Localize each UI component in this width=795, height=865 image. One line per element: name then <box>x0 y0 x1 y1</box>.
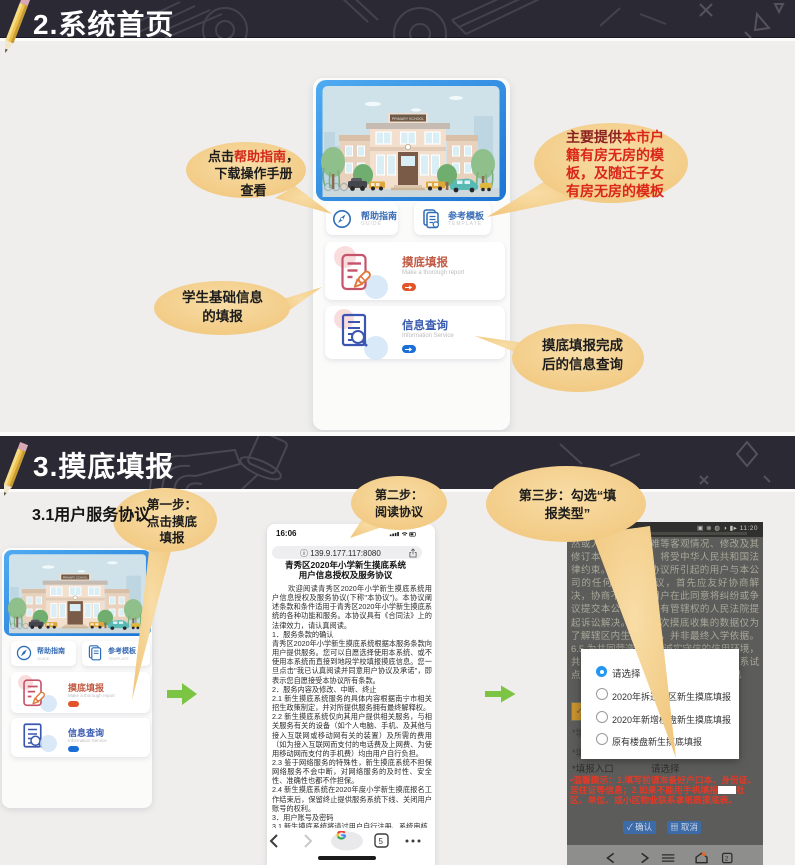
svg-text:5: 5 <box>379 837 384 846</box>
svg-text:2: 2 <box>725 856 729 863</box>
svg-text:PRIMARY SCHOOL: PRIMARY SCHOOL <box>392 117 424 121</box>
